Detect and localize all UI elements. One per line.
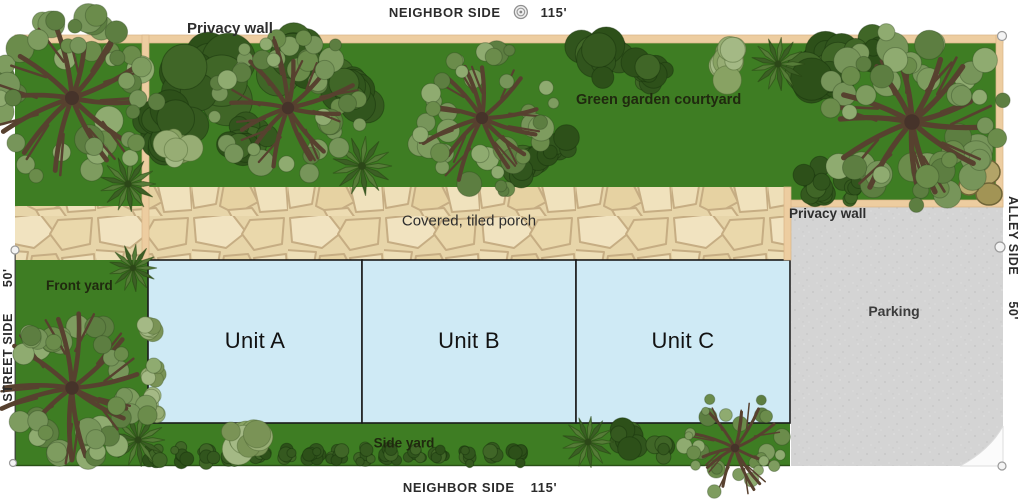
unit-b-area (362, 260, 576, 423)
parking-area (791, 207, 1003, 466)
units-block (148, 260, 790, 423)
unit-a-area (148, 260, 362, 423)
site-plan-graphic (0, 0, 1024, 501)
site-plan: NEIGHBOR SIDE 115' NEIGHBOR SIDE 115' ST… (0, 0, 1024, 501)
